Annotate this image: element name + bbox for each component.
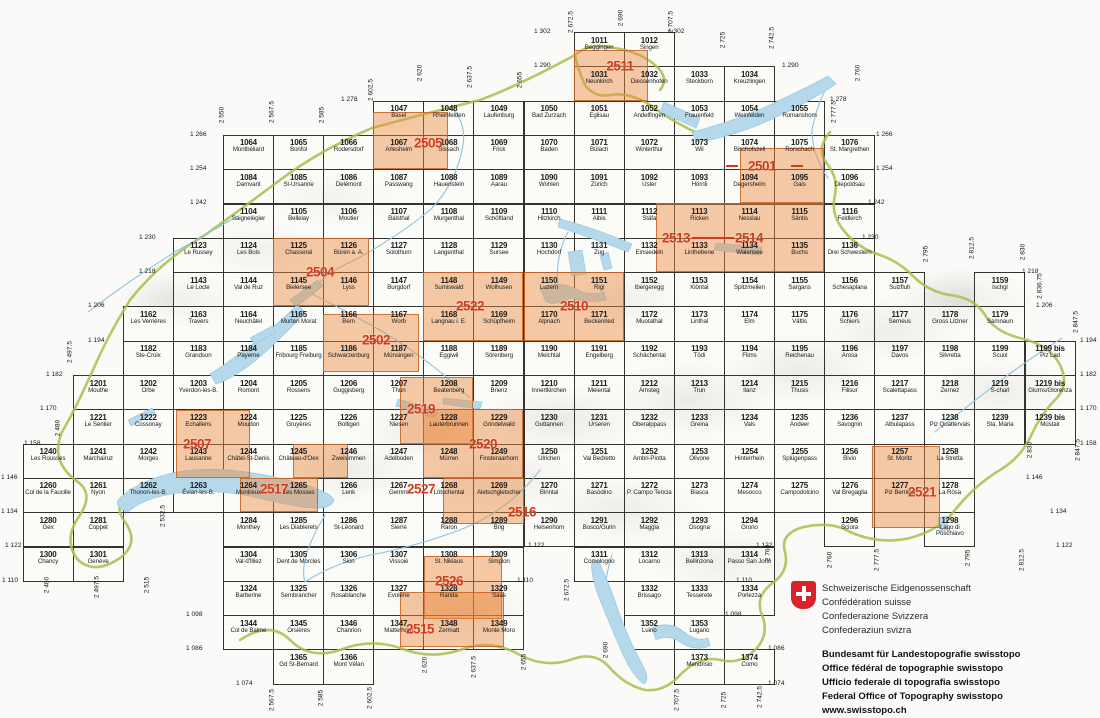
easting-label: 2 742.5	[769, 27, 776, 49]
sheet-name: Meiental	[575, 388, 624, 395]
confederation-name-line: Schweizerische Eidgenossenschaft	[822, 582, 971, 596]
sheet-name: Hörnli	[675, 182, 724, 189]
sheet-name: Klöntal	[675, 285, 724, 292]
sheet-name: Schöftland	[474, 216, 523, 223]
northing-label: 1 110	[2, 577, 18, 584]
sheet-name: Gd St-Bernard	[274, 662, 323, 669]
northing-label: 1 182	[46, 371, 63, 378]
composite-sheet-number-2519[interactable]: 2519	[407, 402, 435, 417]
swiss-cross-icon	[796, 592, 811, 596]
northing-label: 1 122	[5, 542, 22, 549]
sheet-name: Piz Quattervals	[925, 422, 974, 429]
sheet-name: Trun	[675, 388, 724, 395]
sheet-name: Aarau	[474, 182, 523, 189]
sheet-name: Ibergeregg	[625, 285, 674, 292]
northing-label: 1 230	[139, 234, 156, 241]
easting-label: 2 742.5	[757, 686, 764, 708]
easting-label: 2 725	[720, 32, 727, 49]
sheet-name: Degersheim	[725, 182, 774, 189]
northing-label: 1 290	[782, 62, 799, 69]
sheet-name: Vals	[725, 422, 774, 429]
sheet-name: Sargans	[775, 285, 824, 292]
northing-label: 1 134	[1, 508, 18, 515]
northing-label: 1 266	[876, 131, 893, 138]
sheet-name: Schesaplana	[825, 285, 874, 292]
sheet-name: Nyon	[74, 490, 123, 497]
sheet-name: Beggingen	[575, 45, 624, 52]
sheet-name: Bern	[324, 319, 373, 326]
sheet-name: Glurns/Glorenza	[1026, 388, 1075, 395]
sheet-name: Drei Schwestern	[825, 250, 874, 257]
sheet-name: Locarno	[625, 559, 674, 566]
northing-label: 1 110	[736, 577, 752, 584]
easting-label: 2 690	[618, 10, 625, 27]
sheet-name: Flims	[725, 353, 774, 360]
sheet-name: Buchs	[775, 250, 824, 257]
sheet-name: Splügenpass	[775, 456, 824, 463]
sheet-name: St. Moritz	[875, 456, 924, 463]
easting-label: 2 672.5	[564, 579, 571, 601]
composite-sheet-number-2520[interactable]: 2520	[469, 437, 497, 452]
northing-label: 1 134	[1050, 508, 1067, 515]
sheet-name: Stäfa	[625, 216, 674, 223]
sheet-name: Orsières	[274, 628, 323, 635]
sheet-name: Murten Morat	[274, 319, 323, 326]
sheet-name: Elm	[725, 319, 774, 326]
northing-label: 1 254	[190, 165, 207, 172]
northing-label: 1 122	[1056, 542, 1073, 549]
composite-sheet-number-2527[interactable]: 2527	[407, 482, 435, 497]
sheet-name: Balsthal	[374, 216, 423, 223]
northing-label: 1 086	[768, 645, 785, 652]
sheet-name: Binntal	[525, 490, 574, 497]
confederation-name-line: Confederazione Svizzera	[822, 610, 971, 624]
northing-label: 1 242	[868, 199, 885, 206]
sheet-name: Le Sentier	[74, 422, 123, 429]
sheet-name: Boltigen	[324, 422, 373, 429]
sheet-name: Helsenhorn	[525, 525, 574, 532]
easting-label: 2 760	[855, 65, 862, 82]
sheet-name: Feldkirch	[825, 216, 874, 223]
sheet-name: Hinterrhein	[725, 456, 774, 463]
easting-label: 2 620	[422, 657, 429, 674]
sheet-name: Müstair	[1026, 422, 1075, 429]
sheet-name: Lausanne	[174, 456, 223, 463]
sheet-name: Ricken	[675, 216, 724, 223]
sheet-name: Piz Lad	[1026, 353, 1075, 360]
easting-label: 2 760	[765, 545, 772, 562]
sheet-name: Bad Zurzach	[525, 113, 574, 120]
sheet-name: Nesslau	[725, 216, 774, 223]
sheet-name: Bosco/Gurin	[575, 525, 624, 532]
sheet-name: Col de Balme	[224, 628, 273, 635]
sheet-name: Andelfingen	[625, 113, 674, 120]
sheet-name: Porlezza	[725, 593, 774, 600]
easting-label: 2 707.5	[674, 689, 681, 711]
sheet-name: Steckborn	[675, 79, 724, 86]
sheet-name: Barberine	[224, 593, 273, 600]
northing-label: 1 086	[186, 645, 203, 652]
sheet-name: Lenk	[324, 490, 373, 497]
composite-connector-dash	[791, 165, 803, 167]
sheet-name: Gais	[775, 182, 824, 189]
office-name-line: Ufficio federale di topografia swisstopo	[822, 676, 1020, 690]
swiss-confederation-logo	[791, 581, 816, 609]
sheet-name: Ulrichen	[525, 456, 574, 463]
sheet-name: Rodersdorf	[324, 147, 373, 154]
easting-label: 2 690	[603, 642, 610, 659]
northing-label: 1 206	[88, 302, 105, 309]
sheet-name: Thonon-les-B.	[124, 490, 173, 497]
sheet-name: Murgenthal	[424, 216, 473, 223]
sheet-name: Linthal	[675, 319, 724, 326]
easting-label: 2 777.5	[831, 101, 838, 123]
composite-sheet-number-2510[interactable]: 2510	[560, 299, 588, 314]
sheet-name: Bielersee	[274, 285, 323, 292]
composite-connector-dash	[726, 165, 738, 167]
sheet-name: Wil	[675, 147, 724, 154]
sheet-name: S-charl	[975, 388, 1024, 395]
easting-label: 2 795	[965, 550, 972, 567]
sheet-name: Ste-Croix	[124, 353, 173, 360]
sheet-name: Eglisau	[575, 113, 624, 120]
northing-label: 1 194	[88, 337, 105, 344]
sheet-name: Diessenhofen	[625, 79, 674, 86]
sheet-name: Les Rousses	[24, 456, 73, 463]
northing-label: 1 146	[1026, 474, 1043, 481]
confederation-name-line: Confederaziun svizra	[822, 624, 971, 638]
sheet-name: Mesocco	[725, 490, 774, 497]
sheet-name: Yverdon-les-B.	[174, 388, 223, 395]
office-name-line: Office fédéral de topographie swisstopo	[822, 662, 1020, 676]
northing-label: 1 110	[517, 577, 533, 584]
sheet-name: Damvant	[224, 182, 273, 189]
sheet-name: Thun	[374, 388, 423, 395]
sheet-name: Basòdino	[575, 490, 624, 497]
easting-label: 2 515	[144, 577, 151, 594]
sheet-name: Brig	[474, 525, 523, 532]
easting-label: 2 725	[721, 692, 728, 709]
sheet-name: Guggisberg	[324, 388, 373, 395]
sheet-name: Schüpfheim	[474, 319, 523, 326]
sheet-name: Sumiswald	[424, 285, 473, 292]
sheet-name: Sierre	[374, 525, 423, 532]
composite-connector-dash	[692, 237, 734, 239]
composite-sheet-number-2502[interactable]: 2502	[362, 333, 390, 348]
composite-sheet-number-2526[interactable]: 2526	[435, 574, 463, 589]
sheet-name: Travers	[174, 319, 223, 326]
northing-label: 1 218	[139, 268, 156, 275]
easting-label: 2 602.5	[367, 687, 374, 709]
sheet-name: Grandson	[174, 353, 223, 360]
sheet-name: Solothurn	[374, 250, 423, 257]
sheet-name: Rigi	[575, 285, 624, 292]
easting-label: 2 620	[417, 65, 424, 82]
sheet-name: Lyss	[324, 285, 373, 292]
sheet-name: Sursee	[474, 250, 523, 257]
northing-label: 1 266	[190, 131, 207, 138]
easting-label: 2 637.5	[467, 66, 474, 88]
sheet-name: Bischofszell	[725, 147, 774, 154]
sheet-name: Sion	[324, 559, 373, 566]
sheet-name: St. Niklaus	[424, 559, 473, 566]
sheet-name: Château-d'Oex	[274, 456, 323, 463]
easting-label: 2 847.5	[1073, 311, 1080, 333]
sheet-name: Chancy	[24, 559, 73, 566]
sheet-name: Schächental	[625, 353, 674, 360]
sheet-name: Scuol	[975, 353, 1024, 360]
sheet-name: Filisur	[825, 388, 874, 395]
northing-label: 1 170	[40, 405, 57, 412]
sheet-name: Romont	[224, 388, 273, 395]
composite-sheet-number-2521[interactable]: 2521	[908, 485, 936, 500]
sheet-name: Raron	[424, 525, 473, 532]
sheet-name: Le Locle	[174, 285, 223, 292]
sheet-name: Wolhusen	[474, 285, 523, 292]
composite-sheet-number-2505[interactable]: 2505	[414, 136, 442, 151]
easting-label: 2 812.5	[969, 237, 976, 259]
sheet-name: Zernez	[925, 388, 974, 395]
northing-label: 1 122	[528, 542, 545, 549]
sheet-name: Alpnach	[525, 319, 574, 326]
sheet-name: Zürich	[575, 182, 624, 189]
sheet-name: Innertkirchen	[525, 388, 574, 395]
sheet-name: Comologno	[575, 559, 624, 566]
sheet-name: Savognin	[825, 422, 874, 429]
composite-sheet-number-2513[interactable]: 2513	[662, 231, 690, 246]
sheet-name: Biasca	[675, 490, 724, 497]
sheet-name: Worb	[374, 319, 423, 326]
sheet-name: Ambri-Piotta	[625, 456, 674, 463]
sheet-name: Simplon	[474, 559, 523, 566]
northing-label: 1 074	[768, 680, 785, 687]
sheet-name: Niesen	[374, 422, 423, 429]
easting-label: 2 795	[923, 246, 930, 263]
sheet-name: Reichenau	[775, 353, 824, 360]
sheet-name: Les Verrières	[124, 319, 173, 326]
easting-label: 2 777.5	[874, 549, 881, 571]
northing-label: 1 242	[190, 199, 207, 206]
sheet-name: Chanrion	[324, 628, 373, 635]
sheet-name: Sembrancher	[274, 593, 323, 600]
easting-label: 2 567.5	[269, 689, 276, 711]
sheet-name: Randa	[424, 593, 473, 600]
northing-label: 1 098	[186, 611, 203, 618]
sheet-name: Lauterbrunnen	[424, 422, 473, 429]
sheet-name: Silvretta	[925, 353, 974, 360]
sheet-name: Laufenburg	[474, 113, 523, 120]
sheet-name: Bellelay	[274, 216, 323, 223]
sheet-name: Muotathal	[625, 319, 674, 326]
sheet-name: Val de Ruz	[224, 285, 273, 292]
sheet-name: Tesserete	[675, 593, 724, 600]
sheet-name: Chasseral	[274, 250, 323, 257]
sheet-name: Grindelwald	[474, 422, 523, 429]
sheet-name: Winterthur	[625, 147, 674, 154]
sheet-name: Osogna	[675, 525, 724, 532]
sheet-name: Gex	[24, 525, 73, 532]
sheet-name: Coppet	[74, 525, 123, 532]
easting-label: 2 550	[219, 107, 226, 124]
easting-label: 2 672.5	[568, 11, 575, 33]
composite-sheet-number-2511[interactable]: 2511	[606, 59, 633, 74]
easting-label: 2 497.5	[67, 341, 74, 363]
sheet-name: Sulzfluh	[875, 285, 924, 292]
sheet-name: Sörenberg	[474, 353, 523, 360]
easting-label: 2 480	[44, 577, 51, 594]
sheet-name: Maggia	[625, 525, 674, 532]
sheet-name: St-Ursanne	[274, 182, 323, 189]
easting-label: 2 532.5	[160, 505, 167, 527]
sheet-name: Zweisimmen	[324, 456, 373, 463]
sheet-name: Luzern	[525, 285, 574, 292]
sheet-name: Les Diablerets	[274, 525, 323, 532]
sheet-name: Moudon	[224, 422, 273, 429]
sheet-name: Engelberg	[575, 353, 624, 360]
sheet-name: Brissago	[625, 593, 674, 600]
sheet-name: Lugano	[675, 628, 724, 635]
composite-sheet-number-2517[interactable]: 2517	[260, 482, 288, 497]
sheet-name: Montbéliard	[224, 147, 273, 154]
easting-label: 2 707.5	[668, 11, 675, 33]
sheet-name: Adelboden	[374, 456, 423, 463]
sheet-name: Saignelégier	[224, 216, 273, 223]
sheet-name: Mont Vélan	[324, 662, 373, 669]
sheet-name: Val Bedretto	[575, 456, 624, 463]
sheet-name: P. Campo Tencia	[625, 490, 674, 497]
sheet-name: Albis	[575, 216, 624, 223]
northing-label: 1 230	[862, 234, 879, 241]
easting-label: 2 847.5	[1075, 439, 1082, 461]
sheet-name: Weinfelden	[725, 113, 774, 120]
sheet-name: Marchairuz	[74, 456, 123, 463]
composite-sheet-number-2515[interactable]: 2515	[406, 622, 434, 637]
sheet-name: Aletschgletscher	[474, 490, 523, 497]
sheet-name: Lago di Poschiavo	[925, 525, 974, 538]
northing-label: 1 206	[1036, 302, 1053, 309]
sheet-name: Ischgl	[975, 285, 1024, 292]
sheet-name: Como	[725, 662, 774, 669]
sheet-name: Basel	[374, 113, 423, 120]
office-name-line: Bundesamt für Landestopografie swisstopo	[822, 648, 1020, 662]
composite-sheet-number-2504[interactable]: 2504	[306, 265, 334, 280]
sheet-name: Langenthal	[424, 250, 473, 257]
sheet-name: St. Margrethen	[825, 147, 874, 154]
sheet-name: Mouthe	[74, 388, 123, 395]
sheet-name: Vissoie	[374, 559, 423, 566]
northing-label: 1 074	[236, 680, 253, 687]
sheet-name: Amsteg	[625, 388, 674, 395]
easting-label: 2 602.5	[368, 79, 375, 101]
sheet-name: Monte Moro	[474, 628, 523, 635]
sheet-name: Sciora	[825, 525, 874, 532]
sheet-name: Neuchâtel	[224, 319, 273, 326]
sheet-name: Rosablanche	[324, 593, 373, 600]
sheet-name: Dent de Morcles	[274, 559, 323, 566]
sheet-name: Rorschach	[775, 147, 824, 154]
website-link[interactable]: www.swisstopo.ch	[822, 705, 907, 716]
sheet-name: Genève	[74, 559, 123, 566]
northing-label: 1 146	[1, 474, 18, 481]
sheet-name: Luino	[625, 628, 674, 635]
northing-label: 1 158	[1080, 440, 1097, 447]
sheet-name: Bellinzona	[675, 559, 724, 566]
northing-label: 1 194	[1080, 337, 1097, 344]
sheet-name: Évian-les-B.	[174, 490, 223, 497]
sheet-name: Gruyères	[274, 422, 323, 429]
sheet-name: Frick	[474, 147, 523, 154]
easting-label: 2 655	[521, 654, 528, 671]
sheet-name: Orbe	[124, 388, 173, 395]
easting-label: 2 497.5	[94, 576, 101, 598]
sheet-name: Samnaun	[975, 319, 1024, 326]
sheet-name: Arosa	[825, 353, 874, 360]
sheet-name: Hochdorf	[525, 250, 574, 257]
sheet-name: Delémont	[324, 182, 373, 189]
sheet-name: Serneus	[875, 319, 924, 326]
sheet-name: Sta. Maria	[975, 422, 1024, 429]
sheet-name: Melchtal	[525, 353, 574, 360]
composite-sheet-number-2501[interactable]: 2501	[748, 159, 776, 174]
northing-label: 1 170	[1080, 405, 1097, 412]
sheet-name: Rheinfelden	[424, 113, 473, 120]
sheet-name: Châtel-St-Denis	[224, 456, 273, 463]
northing-label: 1 098	[725, 611, 742, 618]
swisstopo-map-sheet-index: 1011Beggingen1012Singen1031Neunkirch1032…	[0, 0, 1100, 718]
composite-sheet-number-2514[interactable]: 2514	[735, 231, 763, 246]
northing-label: 1 302	[534, 28, 551, 35]
composite-sheet-number-2507[interactable]: 2507	[183, 437, 211, 452]
sheet-name: Singen	[625, 45, 674, 52]
sheet-name: Schiers	[825, 319, 874, 326]
easting-label: 2 585	[318, 690, 325, 707]
easting-label: 2 567.5	[269, 101, 276, 123]
sheet-name: Le Russey	[174, 250, 223, 257]
sheet-name: Val Bregaglia	[825, 490, 874, 497]
confederation-name-line: Confédération suisse	[822, 596, 971, 610]
sheet-name: Bonfol	[274, 147, 323, 154]
northing-label: 1 254	[876, 165, 893, 172]
sheet-name: Büren a. A.	[324, 250, 373, 257]
easting-label: 2 760	[827, 552, 834, 569]
easting-label: 2 836.75	[1037, 273, 1044, 299]
easting-label: 2 830	[1027, 442, 1034, 459]
sheet-name: Romanshorn	[775, 113, 824, 120]
sheet-name: Fribourg Freiburg	[274, 353, 323, 360]
sheet-name: Saas	[474, 593, 523, 600]
sheet-name: Echallens	[174, 422, 223, 429]
sheet-name: Davos	[875, 353, 924, 360]
sheet-name: Neunkirch	[575, 79, 624, 86]
sheet-name: Baden	[525, 147, 574, 154]
sheet-name: Langnau i. E.	[424, 319, 473, 326]
sheet-name: Les Bois	[224, 250, 273, 257]
sheet-name: Beckenried	[575, 319, 624, 326]
sheet-name: Greina	[675, 422, 724, 429]
sheet-name: Zug	[575, 250, 624, 257]
sheet-name: Finsteraarhorn	[474, 456, 523, 463]
federal-office-name-block: Bundesamt für Landestopografie swisstopo…	[822, 648, 1020, 704]
composite-sheet-number-2516[interactable]: 2516	[508, 505, 536, 520]
easting-label: 2 637.5	[471, 656, 478, 678]
sheet-name: Urseren	[575, 422, 624, 429]
northing-label: 1 278	[341, 96, 358, 103]
sheet-name: Bivio	[825, 456, 874, 463]
northing-label: 1 182	[1080, 371, 1097, 378]
sheet-name: Campodolcino	[775, 490, 824, 497]
composite-sheet-number-2522[interactable]: 2522	[456, 299, 484, 314]
sheet-name: Uster	[625, 182, 674, 189]
